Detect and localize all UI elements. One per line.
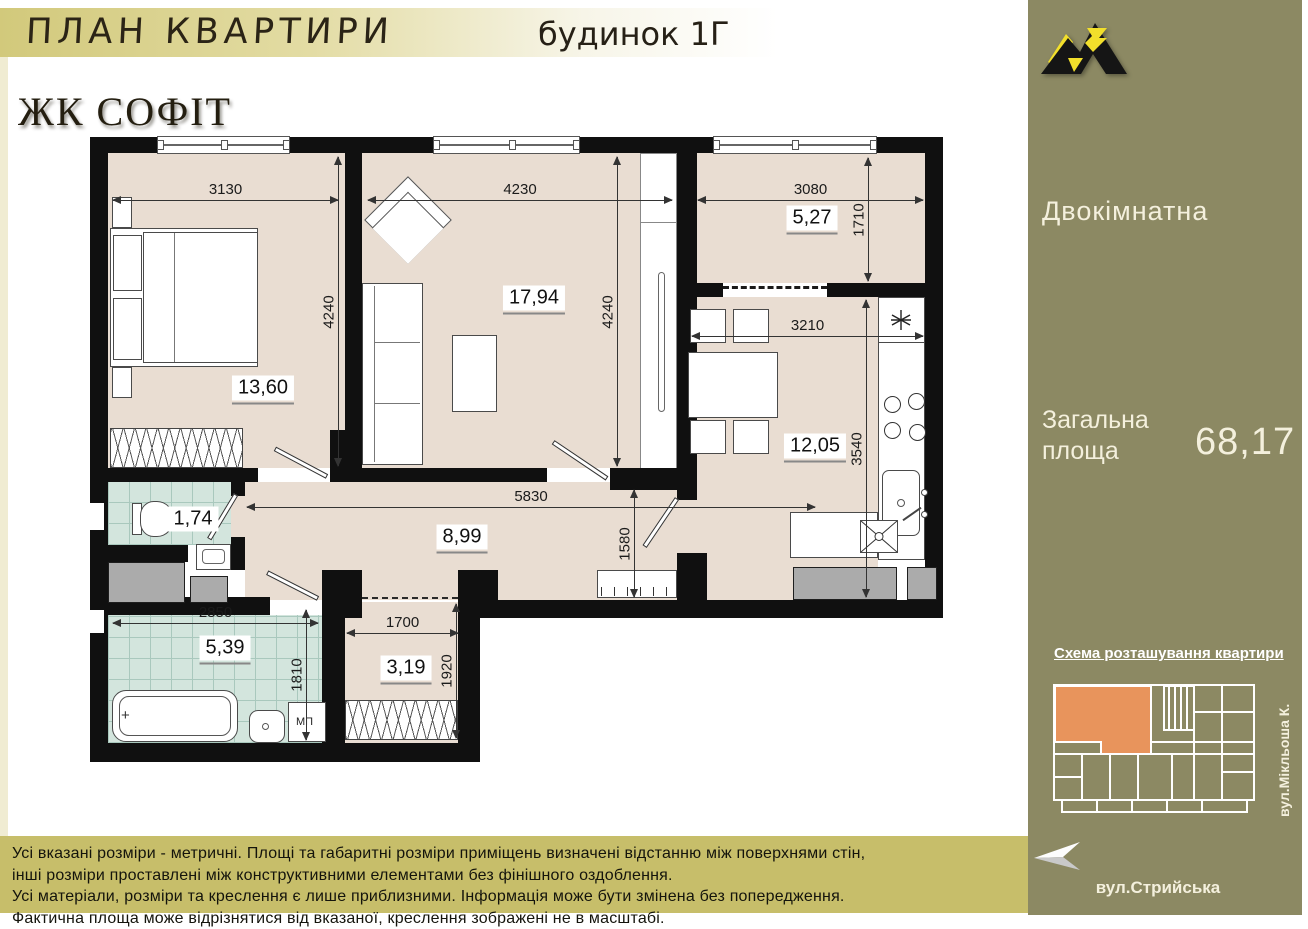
- dim-entry-height: 1580: [634, 490, 635, 597]
- coffee-table: [452, 335, 497, 412]
- disclaimer-line: Фактична площа може відрізнятися від вка…: [12, 908, 1028, 929]
- wall-niche: [90, 610, 104, 633]
- bed-pillow: [113, 298, 142, 360]
- wall: [827, 283, 943, 297]
- dim-closet-height: 1920: [456, 604, 457, 738]
- brand-logo-icon: [1040, 16, 1128, 80]
- closet-opening-dashed: [362, 597, 458, 599]
- brand-name: ЖК СОФІТ: [18, 88, 258, 135]
- dim-closet-width: 1700: [347, 633, 458, 634]
- wall: [677, 283, 723, 297]
- dim-kitchen-height: 3540: [866, 300, 867, 597]
- dim-hall-width: 5830: [247, 507, 815, 508]
- chair: [733, 309, 769, 343]
- street-label-side: вул.Мікльоша К.: [1276, 697, 1296, 817]
- vent-shaft: [907, 567, 937, 600]
- total-area-value: 68,17: [1195, 421, 1292, 464]
- nightstand: [112, 367, 132, 398]
- wall: [345, 153, 362, 470]
- bathtub: +: [112, 690, 238, 742]
- dim-bedroom-width: 3130: [113, 200, 338, 201]
- wall: [498, 600, 943, 618]
- scheme-title: Схема розташування квартири: [1054, 645, 1284, 662]
- dim-bedroom-height: 4240: [338, 157, 339, 466]
- wall: [458, 615, 480, 743]
- wardrobe-shelf-line: [640, 222, 677, 223]
- dim-bathroom-width: 2850: [113, 623, 318, 624]
- area-label-bedroom: 13,60: [232, 376, 294, 405]
- bed-mattress: [143, 232, 258, 363]
- total-area-label: Загальна площа: [1042, 405, 1149, 467]
- page: { "header": { "title": "ПЛАН КВАРТИРИ", …: [0, 0, 1308, 924]
- stove-burner: [908, 393, 925, 410]
- wall: [231, 537, 245, 570]
- stove-burner: [909, 424, 926, 441]
- window-balcony: [713, 136, 877, 154]
- bathroom-sink: [249, 710, 285, 743]
- apartment-type: Двокімнатна: [1042, 196, 1208, 227]
- area-label-closet: 3,19: [381, 656, 432, 685]
- window-living: [433, 136, 580, 154]
- area-label-bathroom: 5,39: [200, 636, 251, 665]
- chair: [690, 420, 726, 454]
- stove-burner: [884, 396, 901, 413]
- faucet-knob: [921, 489, 928, 496]
- bed-pillow: [113, 235, 142, 291]
- area-label-living: 17,94: [503, 286, 565, 315]
- wall: [925, 137, 943, 618]
- wall: [90, 137, 108, 743]
- disclaimer: Усі вказані розміри - метричні. Площі та…: [0, 836, 1028, 913]
- wall: [458, 570, 498, 618]
- wall: [610, 468, 677, 490]
- wardrobe-sliding-door: [658, 272, 665, 412]
- wall: [90, 468, 258, 482]
- washing-machine-label: МП: [296, 716, 313, 728]
- dim-living-width: 4230: [368, 200, 672, 201]
- chair: [733, 420, 769, 454]
- wall: [330, 468, 547, 482]
- area-label-balcony: 5,27: [787, 206, 838, 235]
- dim-living-height: 4240: [617, 157, 618, 466]
- dim-kitchen-width: 3210: [692, 336, 923, 337]
- wardrobe-closet: [345, 700, 458, 740]
- vent-shaft: [793, 567, 897, 600]
- area-label-hall: 8,99: [437, 525, 488, 554]
- wc-sink: [196, 544, 231, 570]
- wall: [90, 743, 480, 762]
- vent-shaft: [108, 562, 185, 603]
- disclaimer-line: Усі матеріали, розміри та креслення є ли…: [12, 886, 1028, 908]
- balcony-door-dashed: [723, 286, 827, 289]
- window-bedroom: [157, 136, 290, 154]
- faucet-knob: [921, 511, 928, 518]
- location-scheme: [1052, 682, 1257, 827]
- dim-bathroom-height: 1810: [306, 610, 307, 740]
- wall: [677, 553, 707, 600]
- street-label-bottom: вул.Стрийська: [1028, 878, 1288, 898]
- area-label-wc: 1,74: [168, 507, 219, 534]
- disclaimer-line: інші розміри проставлені між конструктив…: [12, 865, 1028, 887]
- wall: [290, 137, 433, 153]
- area-label-kitchen: 12,05: [784, 434, 846, 463]
- sofa: [362, 283, 423, 465]
- dining-table: [688, 352, 778, 418]
- wall-niche: [90, 503, 104, 530]
- stove-burner: [884, 422, 901, 439]
- dim-balcony-width: 3080: [698, 200, 923, 201]
- vent-shaft: [190, 576, 228, 603]
- disclaimer-line: Усі вказані розміри - метричні. Площі та…: [12, 843, 1028, 865]
- dim-balcony-height: 1710: [868, 158, 869, 281]
- direction-arrow-icon: [1032, 840, 1082, 872]
- wall: [322, 570, 362, 618]
- snowflake-icon: [889, 308, 913, 332]
- wardrobe-bedroom: [110, 428, 243, 468]
- wall: [90, 545, 188, 562]
